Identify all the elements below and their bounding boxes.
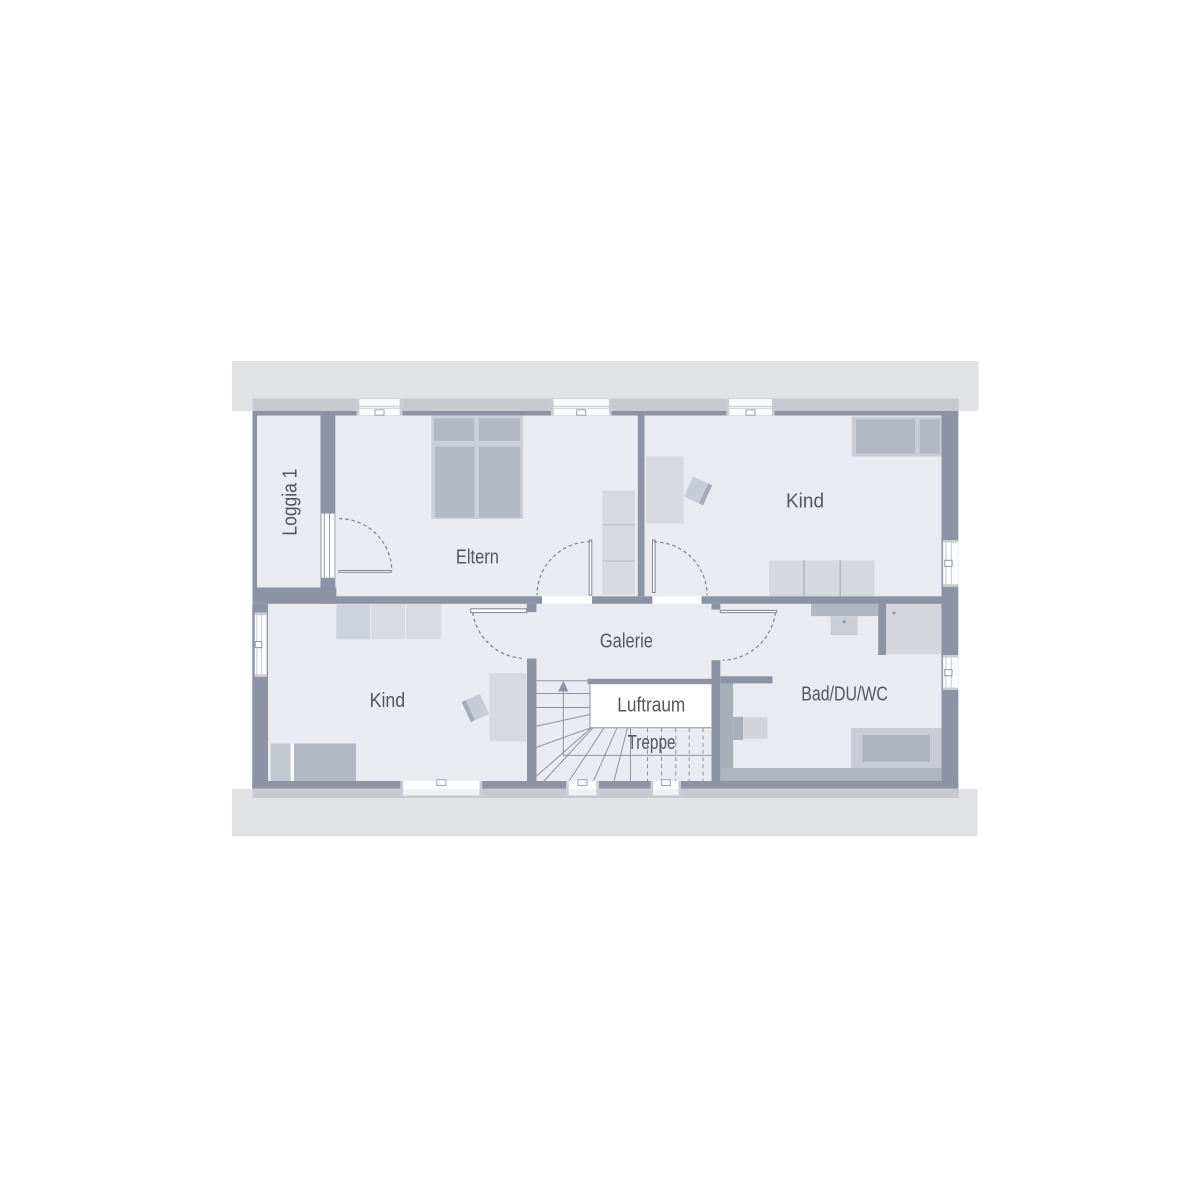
svg-text:Kind: Kind	[370, 690, 406, 712]
svg-text:Kind: Kind	[786, 490, 824, 512]
svg-text:Bad/DU/WC: Bad/DU/WC	[801, 684, 888, 706]
svg-text:Eltern: Eltern	[456, 547, 499, 569]
svg-text:Luftraum: Luftraum	[617, 694, 685, 716]
svg-text:Loggia 1: Loggia 1	[280, 469, 302, 536]
svg-text:Galerie: Galerie	[600, 630, 653, 652]
svg-text:Treppe: Treppe	[628, 732, 676, 754]
